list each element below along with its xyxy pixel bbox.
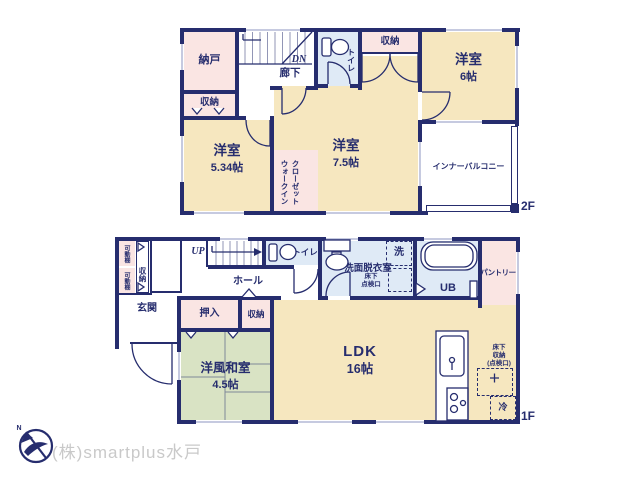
wall-segment (220, 237, 248, 241)
wall-segment (177, 296, 281, 300)
wall-segment (194, 211, 244, 215)
label-genkan: 玄関 (118, 303, 176, 315)
wall-segment (314, 28, 318, 90)
wall-segment (362, 52, 418, 54)
compass-north-label: N (14, 425, 24, 433)
label-stair-dn: DN (286, 54, 312, 66)
wall-segment (115, 293, 151, 295)
label-underfloor-storage: 床下 収納 (点検口) (482, 344, 516, 368)
wall-segment (350, 84, 362, 88)
label-yoshitsu6-size: 6帖 (422, 71, 515, 84)
wall-segment (270, 86, 282, 90)
wall-segment (180, 90, 239, 94)
label-yoshitsu75-name: 洋室 (300, 138, 392, 154)
wall-segment (196, 420, 242, 424)
label-closet-1f: 収納 (242, 309, 270, 319)
label-1f: 1F (521, 409, 551, 423)
label-closet-left-2f: 収納 (184, 97, 235, 108)
wall-segment (270, 116, 274, 215)
balcony-rail-bottom (426, 205, 511, 212)
wall-segment (515, 46, 519, 88)
watermark: (株)smartplus水戸 (52, 438, 202, 463)
wall-segment (350, 296, 413, 300)
label-toilet-1f: トイレ (292, 247, 318, 257)
wall-segment (326, 211, 390, 215)
label-fridge: 冷 (490, 402, 516, 413)
stairs-1f (212, 241, 262, 265)
label-inner-balcony: インナーバルコニー (422, 162, 515, 172)
label-washitsu-size: 4.5帖 (181, 379, 270, 392)
label-yoshitsu6-name: 洋室 (422, 52, 515, 68)
label-yoshitsu75-size: 7.5帖 (300, 157, 392, 170)
underfloor-storage-box (477, 368, 513, 396)
label-movable-shelf-2: 可動棚 (122, 269, 130, 293)
wall-segment (314, 84, 328, 88)
floor-plan-canvas: 納戸 収納 DN 廊下 トイレ 収納 洋室 6帖 洋室 5.34帖 洋室 7.5… (0, 0, 640, 480)
wall-segment (446, 28, 502, 32)
label-wic: ウォークイン クローゼット (279, 154, 301, 210)
wall-segment (150, 239, 152, 295)
wall-segment (511, 204, 519, 213)
wall-segment (177, 328, 274, 332)
label-washitsu-name: 洋風和室 (181, 361, 270, 376)
label-hall: ホール (228, 276, 268, 288)
label-shoe-closet: 収納 (138, 256, 147, 292)
compass-icon (20, 430, 52, 462)
label-ub: UB (430, 282, 466, 295)
label-stair-up: UP (188, 246, 208, 258)
label-underfloor-hatch: 床下 点検口 (356, 273, 386, 290)
label-ldk-size: 16帖 (300, 362, 420, 377)
wall-segment (413, 296, 482, 300)
room-washitsu (181, 332, 270, 420)
wall-segment (424, 237, 452, 241)
wall-segment (235, 28, 239, 120)
wall-segment (150, 291, 182, 293)
wall-segment (443, 388, 448, 420)
wall-segment (318, 296, 328, 300)
label-pantry: パントリー (478, 268, 518, 277)
label-oshiire: 押入 (181, 308, 238, 320)
room-yoshitsu75-upper (362, 56, 418, 86)
label-closet-top-2f: 収納 (362, 36, 418, 47)
wall-segment (413, 237, 417, 300)
label-nando: 納戸 (184, 54, 235, 67)
wall-segment (436, 120, 482, 124)
wall-segment (208, 265, 266, 269)
label-yoshitsu534-size: 5.34帖 (184, 162, 270, 175)
wall-segment (270, 296, 274, 424)
wall-segment (266, 265, 294, 269)
label-washer: 洗 (386, 247, 412, 259)
label-2f: 2F (521, 199, 551, 213)
wall-segment (180, 241, 182, 293)
wall-segment (376, 420, 424, 424)
label-roka: 廊下 (272, 67, 308, 80)
wall-segment (298, 420, 352, 424)
wall-segment (130, 342, 177, 344)
label-ps: PS (324, 241, 350, 250)
label-ldk-name: LDK (300, 343, 420, 361)
wall-segment (246, 28, 300, 32)
wall-segment (318, 237, 322, 300)
label-toilet-2f: トイレ (346, 36, 356, 84)
wall-segment (180, 116, 246, 120)
label-movable-shelf-1: 可動棚 (122, 242, 130, 266)
label-yoshitsu534-name: 洋室 (184, 143, 270, 159)
